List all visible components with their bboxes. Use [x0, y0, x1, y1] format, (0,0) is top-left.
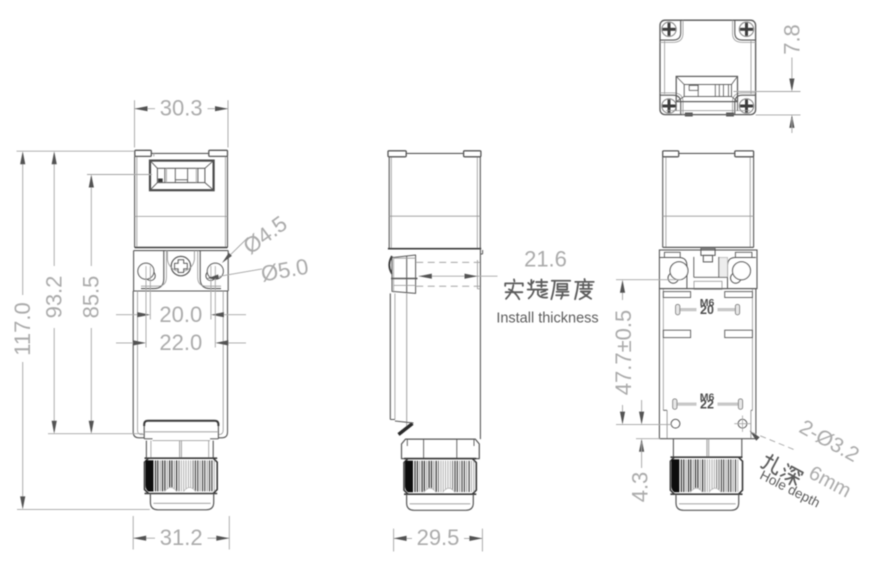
svg-text:85.5: 85.5: [79, 276, 104, 319]
svg-text:4.3: 4.3: [628, 472, 653, 503]
svg-text:7.8: 7.8: [780, 24, 805, 55]
svg-text:30.3: 30.3: [160, 96, 203, 121]
svg-text:117.0: 117.0: [10, 302, 35, 355]
svg-text:20: 20: [700, 303, 714, 317]
svg-text:93.2: 93.2: [42, 276, 67, 319]
svg-text:31.2: 31.2: [160, 525, 203, 550]
svg-text:22.0: 22.0: [159, 330, 202, 355]
svg-text:47.7±0.5: 47.7±0.5: [611, 310, 636, 395]
svg-text:21.6: 21.6: [524, 247, 567, 272]
svg-text:22: 22: [700, 398, 714, 412]
svg-text:29.5: 29.5: [417, 525, 460, 550]
svg-text:Install thickness: Install thickness: [496, 311, 598, 327]
svg-text:20.0: 20.0: [159, 302, 202, 327]
